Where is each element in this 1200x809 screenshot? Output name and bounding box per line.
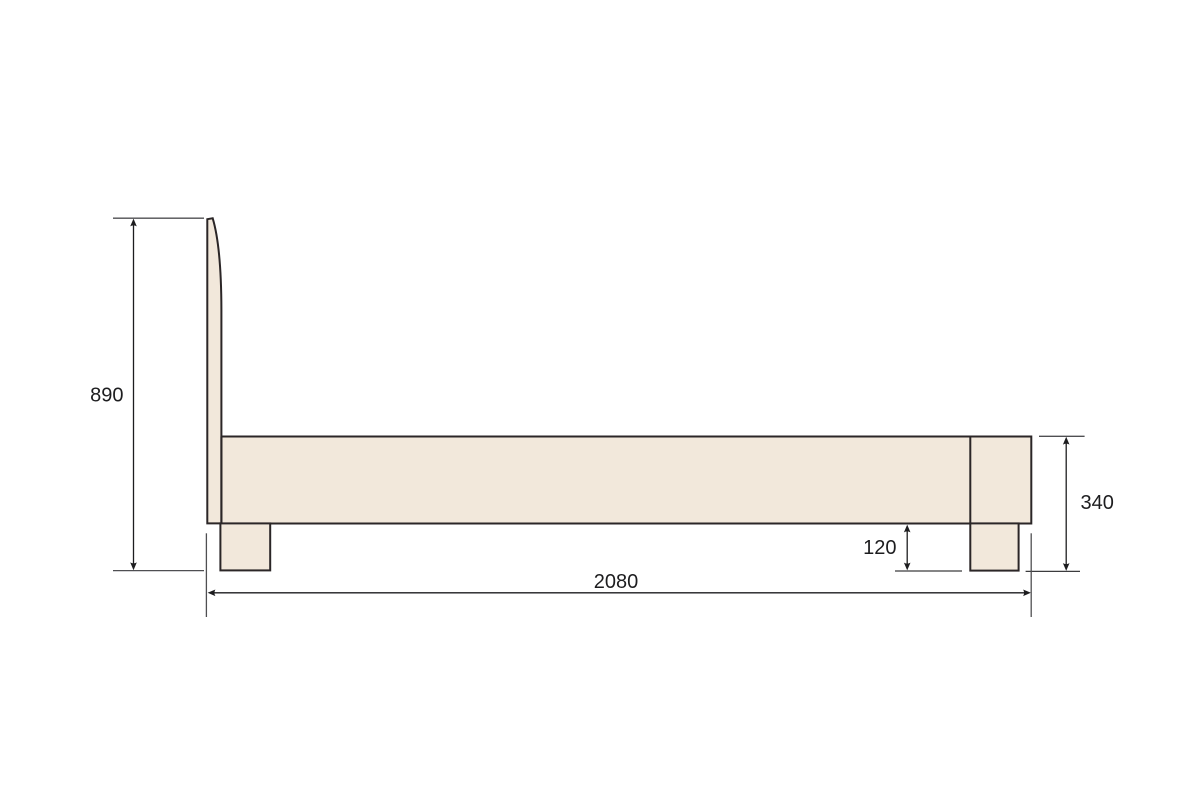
svg-text:2080: 2080 <box>594 571 639 593</box>
svg-text:120: 120 <box>863 537 896 559</box>
svg-text:890: 890 <box>90 385 123 407</box>
svg-text:340: 340 <box>1081 492 1114 514</box>
